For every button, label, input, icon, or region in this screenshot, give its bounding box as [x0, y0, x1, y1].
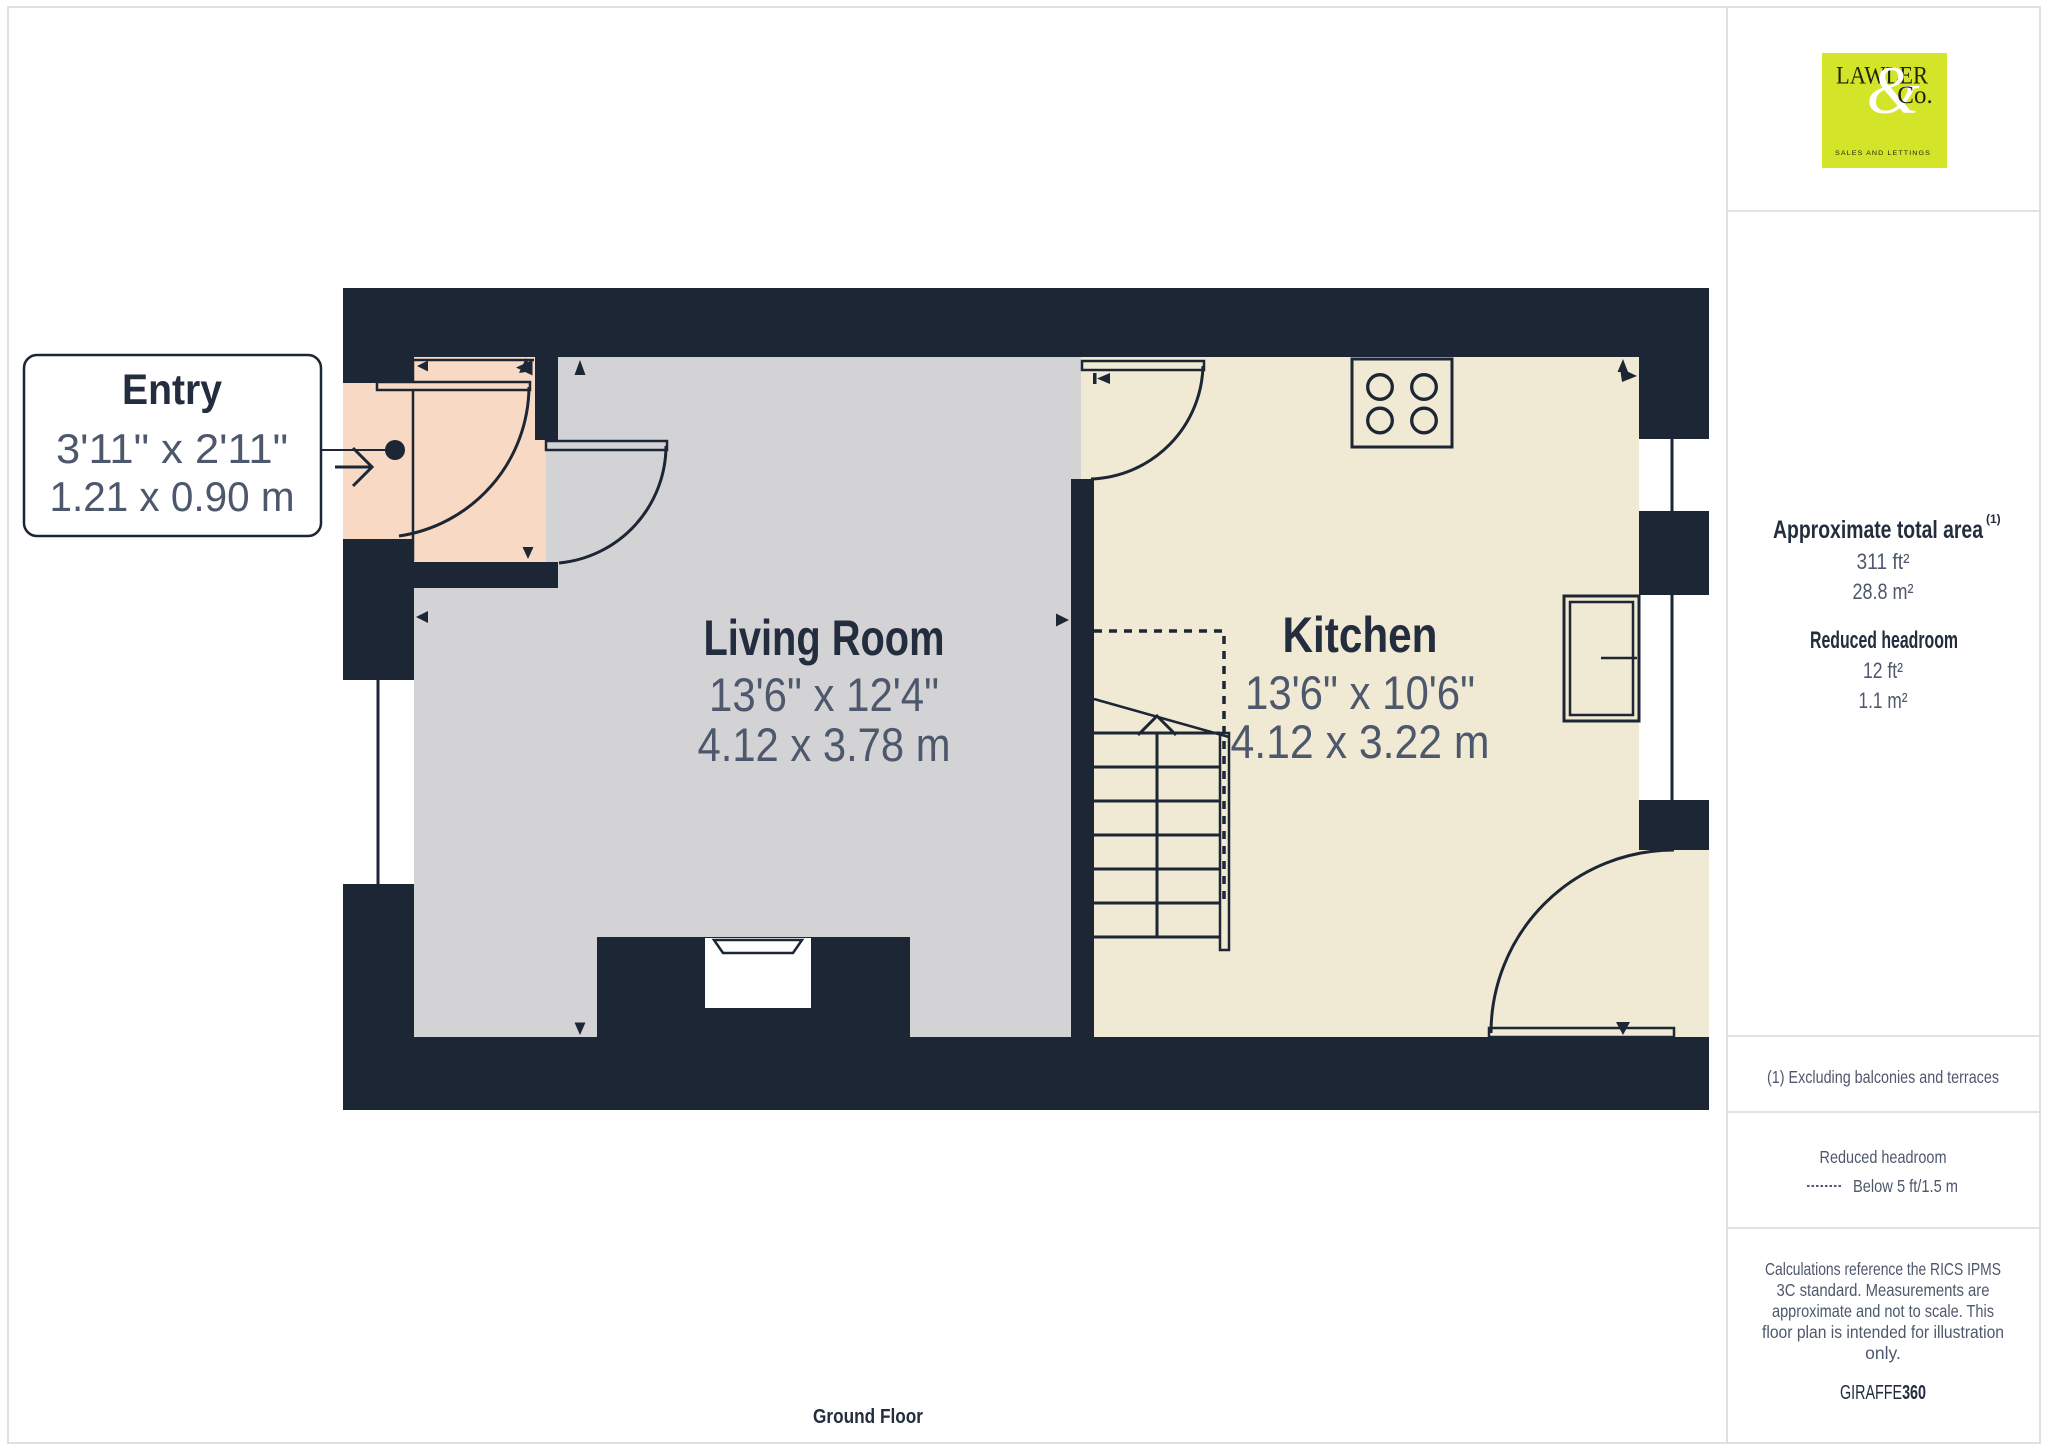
svg-text:3'11" x 2'11": 3'11" x 2'11" [56, 425, 288, 472]
svg-text:only.: only. [1865, 1343, 1901, 1363]
svg-text:12 ft²: 12 ft² [1863, 658, 1903, 683]
svg-text:Below 5 ft/1.5 m: Below 5 ft/1.5 m [1853, 1176, 1958, 1196]
svg-text:approximate and not to scale.: approximate and not to scale. This [1772, 1301, 1994, 1321]
svg-text:13'6" x 10'6": 13'6" x 10'6" [1245, 666, 1475, 719]
svg-text:(1): (1) [1986, 512, 2001, 526]
svg-text:1.1 m²: 1.1 m² [1859, 688, 1908, 713]
svg-text:13'6" x 12'4": 13'6" x 12'4" [709, 668, 939, 721]
svg-text:4.12 x 3.78 m: 4.12 x 3.78 m [698, 718, 951, 771]
svg-text:floor plan is intended for ill: floor plan is intended for illustration [1762, 1322, 2004, 1342]
svg-text:Reduced headroom: Reduced headroom [1810, 627, 1958, 654]
svg-text:311 ft²: 311 ft² [1857, 549, 1910, 574]
svg-text:SALES AND LETTINGS: SALES AND LETTINGS [1835, 150, 1931, 157]
svg-text:Calculations reference the RIC: Calculations reference the RICS IPMS [1765, 1259, 2001, 1279]
svg-text:Reduced headroom: Reduced headroom [1820, 1147, 1947, 1167]
svg-text:1.21 x 0.90 m: 1.21 x 0.90 m [50, 473, 295, 520]
svg-text:Approximate total area: Approximate total area [1773, 516, 1984, 544]
svg-text:Living Room: Living Room [704, 610, 945, 666]
svg-text:3C standard. Measurements are: 3C standard. Measurements are [1777, 1280, 1990, 1300]
svg-text:4.12 x 3.22 m: 4.12 x 3.22 m [1231, 715, 1490, 768]
svg-text:Co.: Co. [1897, 82, 1932, 109]
svg-text:Kitchen: Kitchen [1283, 607, 1438, 663]
svg-text:Entry: Entry [122, 366, 222, 414]
svg-text:GIRAFFE360: GIRAFFE360 [1840, 1382, 1926, 1404]
svg-text:28.8 m²: 28.8 m² [1853, 579, 1914, 604]
svg-text:Ground Floor: Ground Floor [813, 1406, 923, 1428]
svg-text:(1) Excluding balconies and te: (1) Excluding balconies and terraces [1767, 1067, 1999, 1087]
